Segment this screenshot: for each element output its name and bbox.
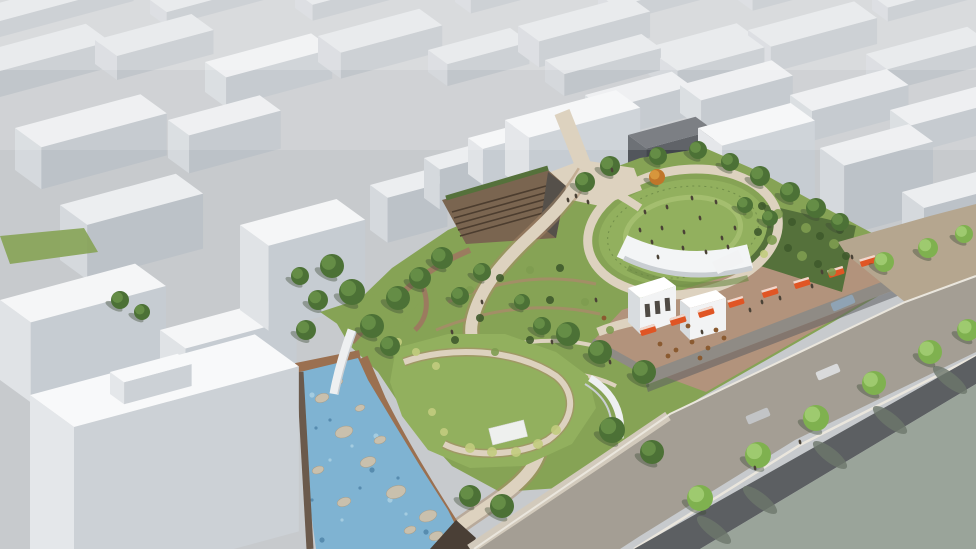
bush xyxy=(432,362,440,370)
bush xyxy=(814,260,822,268)
tree-highlight xyxy=(763,211,773,221)
bush xyxy=(496,274,504,282)
bush xyxy=(606,326,614,334)
bush xyxy=(428,408,436,416)
tree-highlight xyxy=(321,255,335,269)
tree-highlight xyxy=(309,291,321,303)
tree-highlight xyxy=(689,487,705,503)
bush xyxy=(440,428,448,436)
tree-highlight xyxy=(474,264,485,275)
cafe-table xyxy=(706,346,711,351)
tree-highlight xyxy=(387,287,401,301)
tree-highlight xyxy=(491,495,505,509)
tree-highlight xyxy=(432,248,445,261)
bush xyxy=(491,348,499,356)
bush xyxy=(816,232,824,240)
water-speckle xyxy=(309,392,314,397)
water-speckle xyxy=(404,512,407,515)
bush xyxy=(767,235,777,245)
render-canvas: Aerial 3D architectural rendering of a p… xyxy=(0,0,976,549)
water-speckle xyxy=(314,426,317,429)
tree-highlight xyxy=(381,337,393,349)
bush xyxy=(526,336,534,344)
tree-highlight xyxy=(452,288,463,299)
tree-highlight xyxy=(641,441,655,455)
tree-highlight xyxy=(690,142,701,153)
cafe-table xyxy=(674,348,679,353)
bush xyxy=(829,239,839,249)
tree-highlight xyxy=(781,183,793,195)
tree-highlight xyxy=(633,361,647,375)
tree-highlight xyxy=(738,198,748,208)
cafe-table xyxy=(658,342,663,347)
tree-highlight xyxy=(589,341,603,355)
pavilion-opening xyxy=(665,298,671,311)
tree-highlight xyxy=(601,157,613,169)
bush xyxy=(828,268,836,276)
tree-highlight xyxy=(534,318,545,329)
water-speckle xyxy=(319,537,324,542)
tree-highlight xyxy=(297,321,309,333)
bush xyxy=(754,228,762,236)
bush xyxy=(487,447,497,457)
bush xyxy=(556,264,564,272)
water-speckle xyxy=(358,486,361,489)
cafe-table xyxy=(686,324,691,329)
water-speckle xyxy=(350,444,353,447)
tree-highlight xyxy=(112,292,123,303)
bush xyxy=(760,250,768,258)
tree-highlight xyxy=(875,253,887,265)
tree-highlight xyxy=(722,154,733,165)
water-speckle xyxy=(328,458,331,461)
bush xyxy=(476,314,484,322)
tree-highlight xyxy=(410,268,423,281)
cafe-table xyxy=(698,356,703,361)
cafe-table xyxy=(666,354,671,359)
cafe-table xyxy=(602,316,607,321)
bush xyxy=(784,244,792,252)
tree-highlight xyxy=(557,323,571,337)
tree-highlight xyxy=(292,268,303,279)
tree-highlight xyxy=(958,320,971,333)
tree-highlight xyxy=(460,486,473,499)
tree-highlight xyxy=(650,148,661,159)
water-speckle xyxy=(340,518,343,521)
bush xyxy=(788,218,796,226)
cafe-table xyxy=(722,336,727,341)
tree-highlight xyxy=(807,199,819,211)
tree-highlight xyxy=(751,167,763,179)
water-speckle xyxy=(369,467,374,472)
bush xyxy=(551,425,561,435)
tree-highlight xyxy=(919,341,933,355)
bush xyxy=(546,296,554,304)
tree-highlight xyxy=(747,444,763,460)
tree-highlight xyxy=(601,419,617,435)
water-speckle xyxy=(396,476,399,479)
bush xyxy=(581,298,589,306)
bush xyxy=(758,202,766,210)
tree-highlight xyxy=(956,226,967,237)
tree-highlight xyxy=(650,170,660,180)
water-speckle xyxy=(423,529,428,534)
tree-highlight xyxy=(832,214,843,225)
pavilion-opening xyxy=(655,301,661,314)
tree-highlight xyxy=(576,173,588,185)
water-speckle xyxy=(328,418,331,421)
tree-highlight xyxy=(341,281,357,297)
bush xyxy=(533,439,543,449)
bush xyxy=(465,443,475,453)
haze-overlay-top xyxy=(0,0,976,70)
tree-highlight xyxy=(135,305,145,315)
bush xyxy=(526,266,534,274)
architectural-render: Aerial 3D architectural rendering of a p… xyxy=(0,0,976,549)
tree-highlight xyxy=(919,239,931,251)
bush xyxy=(842,252,850,260)
tree-highlight xyxy=(515,295,525,305)
bush xyxy=(797,251,807,261)
tree-highlight xyxy=(863,372,877,386)
bush xyxy=(511,447,521,457)
bush xyxy=(801,223,811,233)
cafe-table xyxy=(690,340,695,345)
cafe-table xyxy=(714,328,719,333)
water-speckle xyxy=(310,498,313,501)
bush xyxy=(451,336,459,344)
tree-highlight xyxy=(361,315,375,329)
bush xyxy=(412,348,420,356)
pavilion-opening xyxy=(645,304,651,317)
tree-highlight xyxy=(805,407,821,423)
